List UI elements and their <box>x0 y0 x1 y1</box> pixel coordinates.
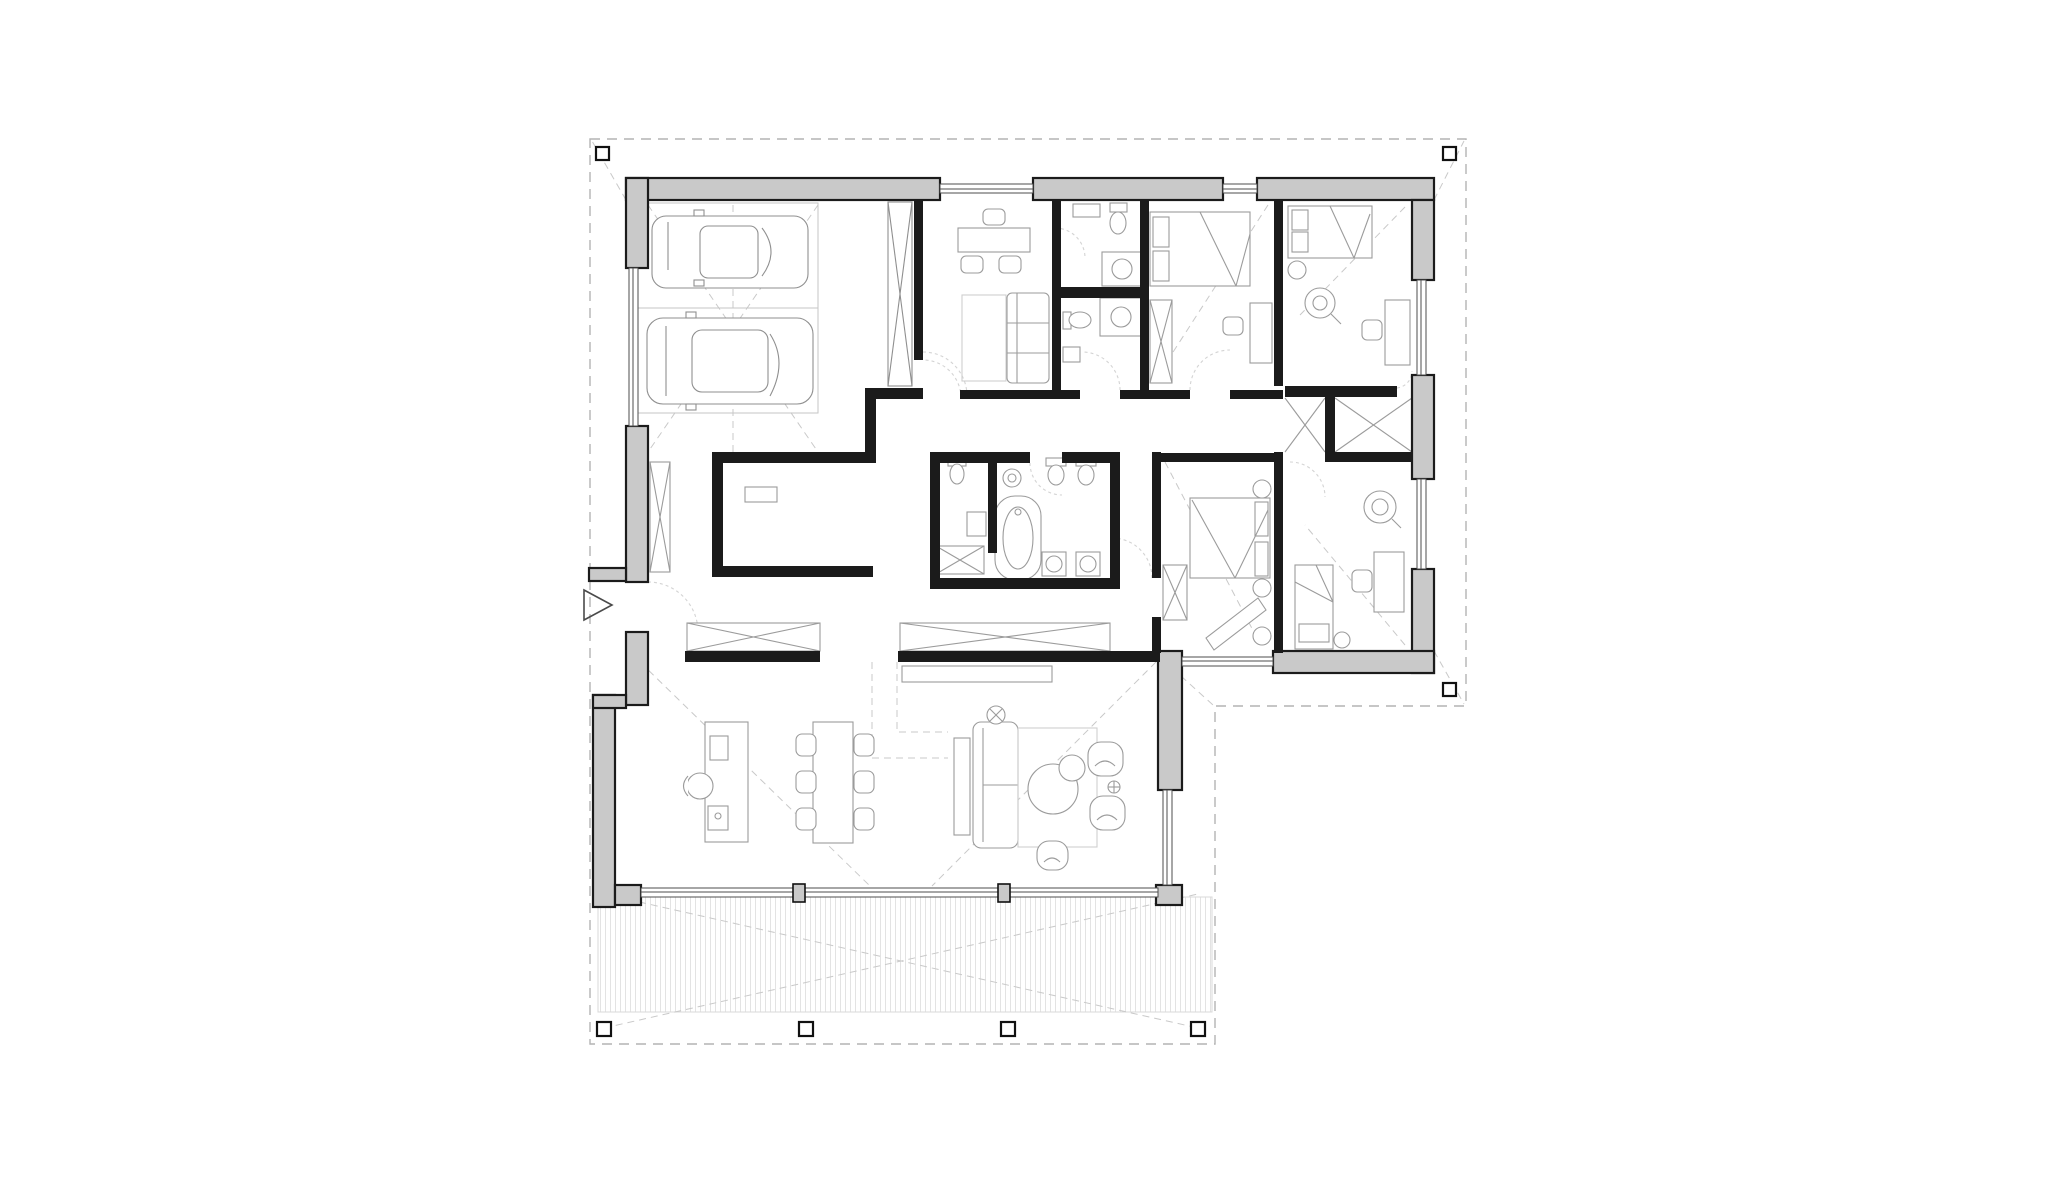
dining-table <box>813 722 853 843</box>
desk-3 <box>1374 552 1404 612</box>
bathroom-fixtures <box>936 458 1100 580</box>
glass-mullion-1 <box>793 884 805 902</box>
bedroom-bottom-right-furniture <box>1285 398 1412 649</box>
marker-nw <box>596 147 609 160</box>
office-sofa <box>1007 293 1049 383</box>
toilet-wc1 <box>1110 203 1127 212</box>
east-wall-top <box>1412 200 1434 280</box>
entrance-marker <box>584 590 612 620</box>
office-desk <box>958 228 1030 252</box>
bedroom-top-middle-furniture <box>1150 212 1272 383</box>
north-wall-mid <box>1033 178 1223 200</box>
desk-1 <box>1250 303 1272 363</box>
office-furniture <box>958 209 1049 383</box>
kitchen-stool <box>687 773 713 799</box>
south-wall-east-wing <box>1273 651 1434 673</box>
marker-ne <box>1443 147 1456 160</box>
terrace-post-1 <box>597 1022 611 1036</box>
lounge-furniture <box>954 706 1125 870</box>
marker-e <box>1443 683 1456 696</box>
entrance-arrow <box>584 590 612 620</box>
west-wall-living <box>593 695 615 907</box>
wc-fixtures <box>1063 203 1142 362</box>
glass-mullion-2 <box>998 884 1010 902</box>
east-wall-living <box>1158 651 1182 790</box>
master-bedroom-furniture <box>1163 480 1271 650</box>
kitchen-sink <box>710 736 728 760</box>
storage-shelf <box>745 487 777 502</box>
sink-wc2 <box>1111 307 1131 327</box>
sink-wc1 <box>1112 259 1132 279</box>
armchair-1 <box>1088 742 1123 776</box>
corner-post-sw <box>615 885 641 905</box>
desk-2 <box>1385 300 1410 365</box>
terrace-hatch <box>598 897 1212 1012</box>
north-wall-garage <box>626 178 940 200</box>
terrace-post-3 <box>1001 1022 1015 1036</box>
floor-plan-svg <box>0 0 2052 1200</box>
terrace-deck <box>598 897 1212 1012</box>
north-wall-east <box>1257 178 1434 200</box>
kitchen-furniture <box>684 722 749 842</box>
corner-post-se <box>1156 885 1182 905</box>
garage-furniture <box>637 202 912 413</box>
dining-furniture <box>796 722 874 843</box>
armchair-3 <box>1037 841 1068 870</box>
floor-plan-page <box>0 0 2052 1200</box>
terrace-post-2 <box>799 1022 813 1036</box>
bedroom-top-right-furniture <box>1288 206 1410 365</box>
armchair-2 <box>1090 796 1125 830</box>
sideboard <box>902 666 1052 682</box>
terrace-post-4 <box>1191 1022 1205 1036</box>
